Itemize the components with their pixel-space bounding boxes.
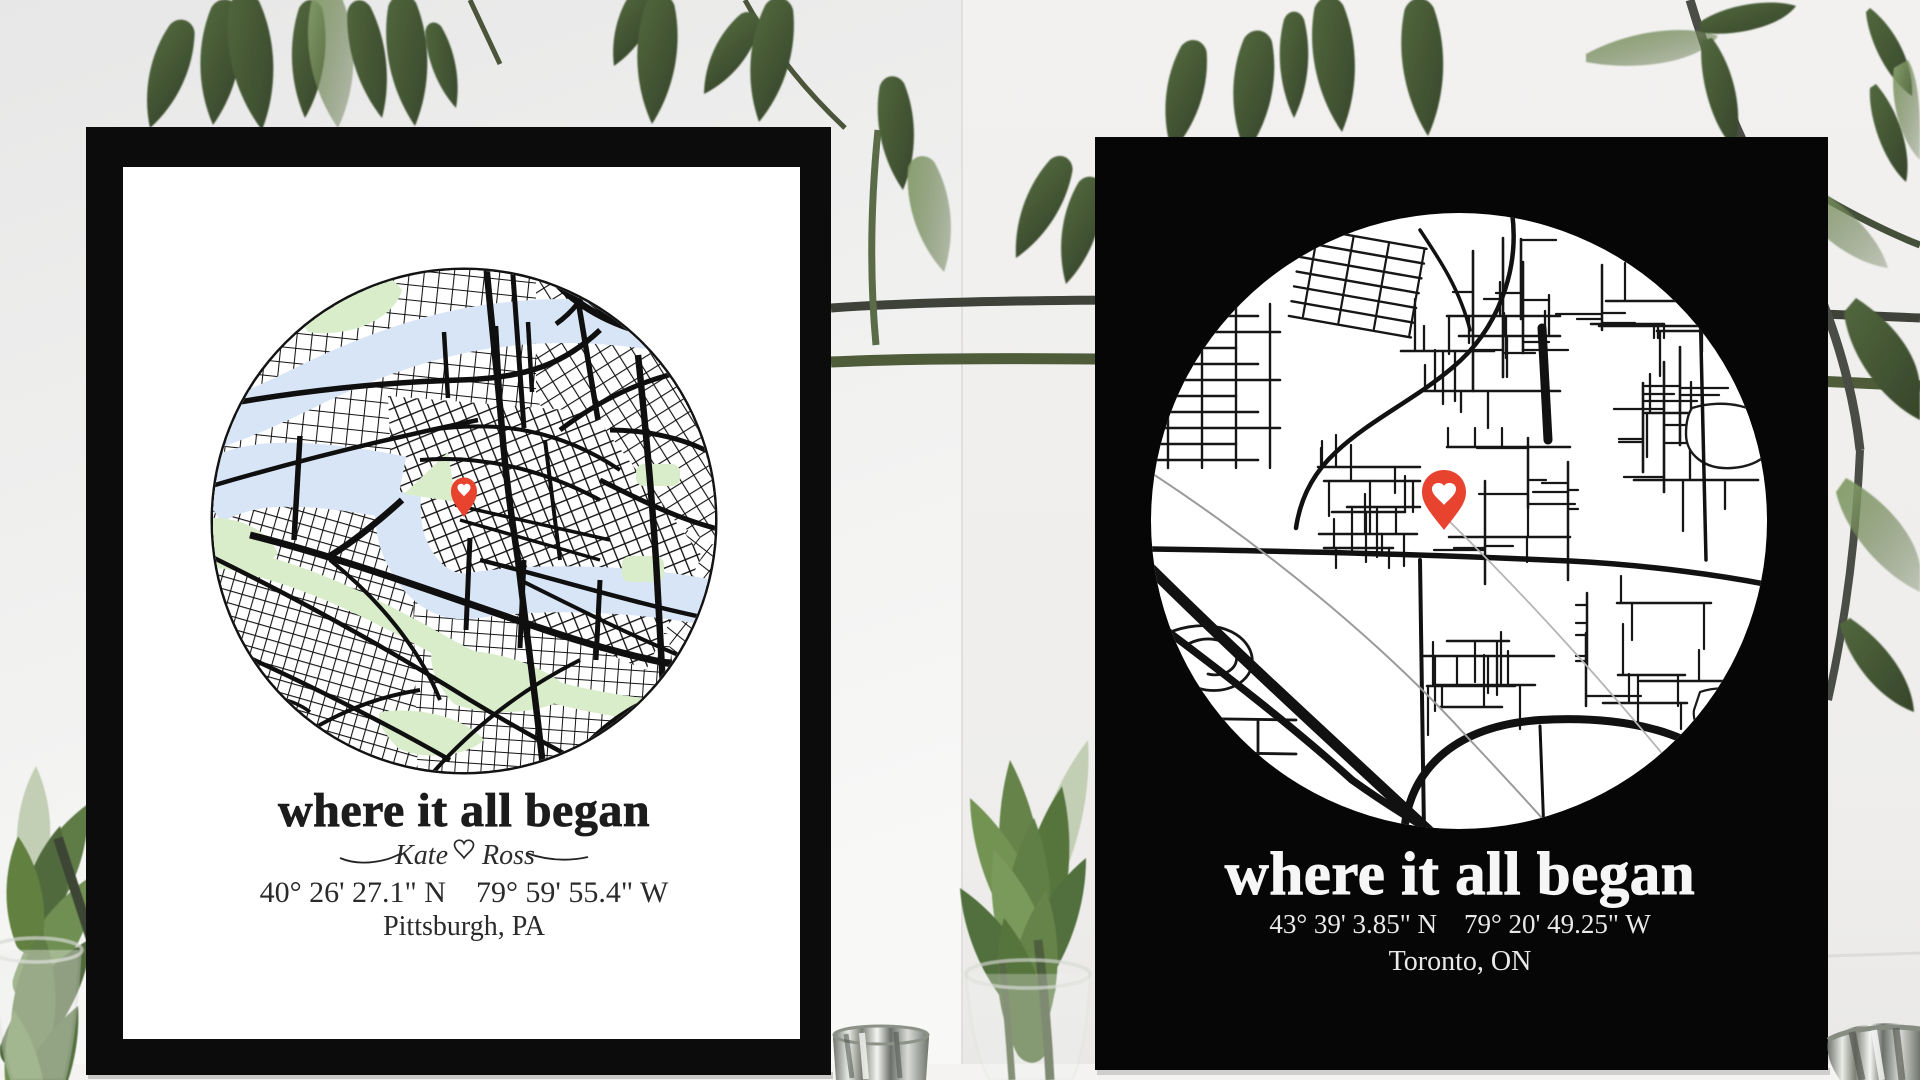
svg-text:Pittsburgh, PA: Pittsburgh, PA [383, 911, 546, 942]
svg-text:Kate: Kate [394, 840, 448, 871]
svg-text:40° 26' 27.1" N 79° 59' 55.: 40° 26' 27.1" N 79° 59' 55.4" W [260, 876, 669, 909]
svg-text:Ross: Ross [481, 840, 535, 871]
svg-text:where it all began: where it all began [278, 784, 650, 837]
svg-text:Toronto, ON: Toronto, ON [1389, 946, 1532, 977]
svg-text:43° 39' 3.85" N 79° 20' 49.: 43° 39' 3.85" N 79° 20' 49.25" W [1269, 909, 1651, 939]
svg-text:where it all began: where it all began [1225, 841, 1695, 908]
